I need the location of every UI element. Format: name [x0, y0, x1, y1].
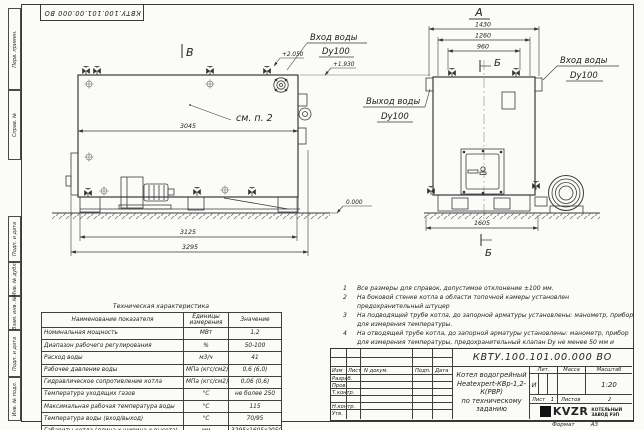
spec-value: не более 250	[229, 388, 282, 400]
table-row: Максимальная рабочая температура воды°С1…	[42, 401, 282, 413]
inlet-right-dn: Dy100	[570, 71, 598, 81]
spec-value: 1,2	[229, 328, 282, 340]
spec-units: МПа (кгс/см2)	[184, 364, 229, 376]
title-block-doc-number: КВТУ.100.101.00.000 ВО	[453, 349, 632, 367]
spec-name: Температура воды (вход/выход)	[42, 413, 184, 425]
dim-1260: 1260	[475, 33, 491, 40]
elev-0000: 0.000	[346, 200, 363, 206]
blower-motor	[119, 177, 174, 209]
table-row: Рабочее давление водыМПа (кгс/см2)0,6 (6…	[42, 364, 282, 376]
spec-name: Температура уходящих газов	[42, 388, 184, 400]
spec-units: мм	[184, 425, 229, 430]
mass-label: Масса	[558, 367, 586, 374]
boiler-side-view	[52, 43, 430, 256]
dim-3045: 3045	[180, 123, 196, 130]
table-row: Гидравлическое сопротивление котлаМПа (к…	[42, 376, 282, 388]
table-row: Номинальная мощностьМВт1,2	[42, 328, 282, 340]
sheets-value: 2	[608, 397, 611, 403]
spec-units: МПа (кгс/см2)	[184, 376, 229, 388]
note-number: 2	[343, 294, 350, 312]
notes-list: 1Все размеры для справок, допустимое отк…	[343, 285, 634, 357]
drawing-sheet: Перв. примен. Справ. № Подп. и дата Инв.…	[0, 0, 644, 430]
spec-name: Рабочее давление воды	[42, 364, 184, 376]
note-text: Все размеры для справок, допустимое откл…	[357, 285, 634, 294]
product-line3: по техническому заданию	[453, 397, 530, 414]
spec-units: °С	[184, 401, 229, 413]
furnace-door	[461, 149, 504, 194]
note-number: 1	[343, 285, 350, 294]
spec-col-name: Наименование показателя	[42, 313, 184, 328]
rev-header-data: Дата	[435, 368, 448, 374]
dim-1605: 1605	[474, 220, 490, 227]
spec-header-row: Наименование показателя Единицы измерени…	[42, 313, 282, 328]
spec-value: 50-100	[229, 340, 282, 352]
role-razrab: Разраб.	[332, 376, 352, 382]
spec-table: Наименование показателя Единицы измерени…	[41, 312, 282, 430]
spec-name: Номинальная мощность	[42, 328, 184, 340]
rev-header-list: Лист	[348, 368, 361, 374]
view-mark-b: В	[186, 46, 194, 59]
spec-value: 41	[229, 352, 282, 364]
format-value: А3	[591, 422, 598, 428]
spec-col-units: Единицы измерения	[184, 313, 229, 328]
note-text: На подводящей трубе котла, до запорной а…	[357, 312, 634, 330]
rev-header-podp: Подп.	[415, 368, 431, 374]
sheet-cell: Лист 1	[530, 395, 558, 404]
spec-name: Диапазон рабочего регулирования	[42, 340, 184, 352]
dim-3125: 3125	[180, 229, 196, 236]
outlet-left-dn: Dy100	[381, 112, 409, 122]
rev-header-doc: N докум.	[364, 368, 388, 374]
scale-label: Масштаб	[586, 367, 632, 374]
dim-960: 960	[477, 44, 489, 51]
spec-value: 0,06 (0,6)	[229, 376, 282, 388]
role-nkontr: Н.контр.	[332, 404, 355, 410]
role-prov: Пров.	[332, 383, 347, 389]
dim-1430: 1430	[475, 22, 491, 29]
section-mark-b-top: Б	[494, 58, 501, 69]
spec-name: Максимальная рабочая температура воды	[42, 401, 184, 413]
drawing-labels: В см. п. 2 3045 3125 3295 +2.050 +1.930 …	[180, 6, 608, 259]
section-mark-b-bottom: Б	[485, 248, 492, 259]
inlet-top-label: Вход воды	[310, 33, 358, 43]
boiler-front-view	[363, 19, 619, 246]
table-row: Расход водым3/ч41	[42, 352, 282, 364]
spec-table-title: Техническая характеристика	[41, 302, 281, 312]
role-tkontr: Т.контр.	[332, 390, 354, 396]
spec-name: Гидравлическое сопротивление котла	[42, 376, 184, 388]
see-note-label: см. п. 2	[236, 113, 273, 124]
spec-col-value: Значение	[229, 313, 282, 328]
table-row: Температура уходящих газов°Сне более 250	[42, 388, 282, 400]
sheets-label: Листов	[561, 397, 580, 403]
fan	[549, 176, 584, 214]
spec-units: %	[184, 340, 229, 352]
spec-units: МВт	[184, 328, 229, 340]
company-name: КОТЕЛЬНЫЙ ЗАВОД РЭП	[591, 407, 622, 417]
sheet-value: 1	[551, 397, 554, 403]
spec-value: 115	[229, 401, 282, 413]
format-note: Формат А3	[552, 422, 598, 428]
title-block: Изм Лист N докум. Подп. Дата Разраб. Про…	[330, 348, 634, 421]
product-line2: Heatexpert-КВр-1,2-К(РВР)	[453, 380, 530, 397]
spec-units: °С	[184, 388, 229, 400]
outlet-left-label: Выход воды	[366, 97, 420, 107]
spec-value: 70/95	[229, 413, 282, 425]
elev-1930: +1.930	[333, 62, 355, 68]
table-row: Температура воды (вход/выход)°С70/95	[42, 413, 282, 425]
spec-table-wrap: Техническая характеристика Наименование …	[41, 302, 281, 430]
spec-units: °С	[184, 413, 229, 425]
elev-2050: +2.050	[282, 52, 304, 58]
dim-3295: 3295	[182, 244, 198, 251]
kvzr-logo-icon	[540, 406, 551, 417]
spec-name: Расход воды	[42, 352, 184, 364]
note-item: 1Все размеры для справок, допустимое отк…	[343, 285, 634, 294]
note-number: 3	[343, 312, 350, 330]
lit-label: Лит.	[530, 367, 558, 374]
company-line1: КОТЕЛЬНЫЙ	[591, 407, 622, 412]
company-cell: KVZR КОТЕЛЬНЫЙ ЗАВОД РЭП	[530, 404, 632, 419]
table-row: Габариты котла (длина х ширина х высота)…	[42, 425, 282, 430]
inlet-top-dn: Dy100	[322, 47, 350, 57]
view-mark-a: А	[474, 6, 483, 19]
spec-units: м3/ч	[184, 352, 229, 364]
sheet-label: Лист	[532, 397, 545, 403]
product-line1: Котел водогрейный	[453, 371, 530, 380]
spec-name: Габариты котла (длина х ширина х высота)	[42, 425, 184, 430]
kvzr-logo-text: KVZR	[553, 409, 588, 415]
sheets-cell: Листов 2	[558, 395, 632, 404]
format-label: Формат	[552, 422, 575, 428]
note-item: 2На боковой стенке котла в области топоч…	[343, 294, 634, 312]
table-row: Диапазон рабочего регулирования%50-100	[42, 340, 282, 352]
note-text: На боковой стенке котла в области топочн…	[357, 294, 634, 312]
company-line2: ЗАВОД РЭП	[591, 412, 622, 417]
note-item: 3На подводящей трубе котла, до запорной …	[343, 312, 634, 330]
product-name: Котел водогрейный Heatexpert-КВр-1,2-К(Р…	[453, 371, 530, 414]
spec-value: 0,6 (6,0)	[229, 364, 282, 376]
rev-header-izm: Изм	[332, 368, 343, 374]
spec-value: 3295х1605х2050	[229, 425, 282, 430]
role-utv: Утв.	[332, 411, 343, 417]
inlet-right-label: Вход воды	[560, 56, 608, 66]
